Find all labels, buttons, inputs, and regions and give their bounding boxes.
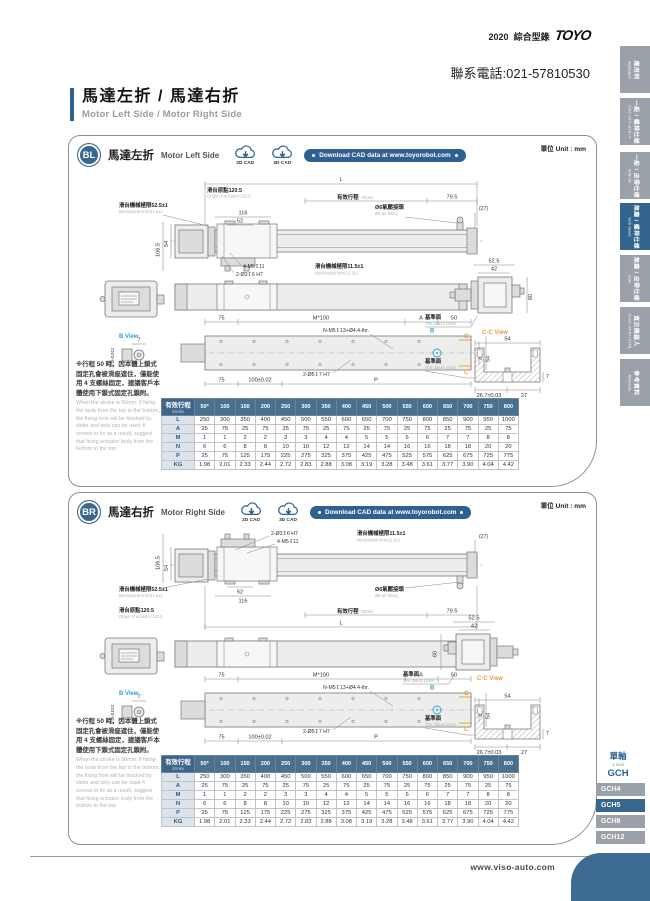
anno-label: 滑台原點120.5 <box>119 606 154 614</box>
br-note: ※行程 50 時，因本體上鎖式固定孔會被滑座遮住，僅能使用 4 支螺絲固定，建議… <box>76 717 162 811</box>
stroke-col-header: 300 <box>296 399 316 416</box>
tab-label-en: ECB <box>628 275 632 282</box>
table-cell: 25 <box>438 782 458 791</box>
table-cell: 6 <box>215 800 235 809</box>
br-stroke-table: 有效行程Stroke50*100150200250300350400450500… <box>161 755 519 827</box>
row-label: M <box>162 434 195 443</box>
bview-label: B View <box>119 334 139 340</box>
unit-label: 單位 Unit : mm <box>541 143 586 153</box>
note-zh: ※行程 50 時，因本體上鎖式固定孔會被滑座遮住，僅能使用 4 支螺絲固定，建議… <box>76 360 162 398</box>
dim-label: 60 <box>528 294 534 300</box>
row-label: A <box>162 425 195 434</box>
table-cell: 4 <box>336 791 356 800</box>
sidebar-item-xygt-xyth-xytb[interactable]: 直交機器人XYGT / XYTH / XYTB <box>620 307 650 354</box>
anno-label: Mechanical limit:11.5±1 <box>357 538 401 543</box>
table-cell: 300 <box>215 773 235 782</box>
dim-label: 27 <box>521 750 527 756</box>
bl-note: ※行程 50 時，因本體上鎖式固定孔會被滑座遮住，僅能使用 4 支螺絲固定，建議… <box>76 360 162 454</box>
table-cell: 6 <box>397 791 417 800</box>
table-cell: 7 <box>458 791 478 800</box>
table-cell: 25 <box>478 425 498 434</box>
page-title-block: 馬達左折 / 馬達右折 Motor Left Side / Motor Righ… <box>70 88 242 121</box>
dim-label: 50 <box>451 316 457 322</box>
table-cell: 775 <box>498 452 518 461</box>
stroke-col-header: 150 <box>235 756 255 773</box>
download-cad-button[interactable]: Download CAD data at www.toyorobot.com <box>310 506 471 519</box>
dim-label: 50 <box>451 673 457 679</box>
table-cell: 250 <box>195 773 215 782</box>
table-cell: 125 <box>235 809 255 818</box>
tab-gch4[interactable]: GCH4 <box>596 783 645 796</box>
dim-label: 42 <box>471 624 477 630</box>
anno-label: 2-Ø5↧7 H7 <box>303 372 330 378</box>
table-cell: 2.44 <box>255 818 275 827</box>
dim-label: 42 <box>491 267 497 273</box>
cad-3d-button[interactable]: 3D CAD <box>267 145 297 166</box>
table-cell: 750 <box>397 416 417 425</box>
anno-label: Ø6氣壓接頭 <box>375 585 404 593</box>
table-cell: 400 <box>255 773 275 782</box>
table-cell: 8 <box>498 791 518 800</box>
anno-label: The datum plane <box>425 365 457 370</box>
anno-label: Stroke <box>361 609 374 614</box>
table-cell: 18 <box>458 800 478 809</box>
tab-gch8[interactable]: GCH8 <box>596 815 645 828</box>
tab-label-zh: 應用例 <box>633 60 642 79</box>
anno-label: 2-Ø3↧6 H7 <box>236 272 263 278</box>
dot-icon <box>318 511 321 514</box>
table-cell: 25 <box>316 425 336 434</box>
table-cell: 75 <box>215 425 235 434</box>
dim-label: 54 <box>486 713 492 719</box>
table-cell: 25 <box>195 809 215 818</box>
table-cell: 225 <box>276 809 296 818</box>
bview-label: B View <box>119 691 139 697</box>
section-marker: C <box>464 691 469 697</box>
sidebar-item-gth-gty-eth-y[interactable]: 一般 / 螺桿仕樣GTH / GTY / ETH / Y <box>620 98 650 145</box>
stroke-col-header: 50* <box>195 399 215 416</box>
table-cell: 425 <box>357 809 377 818</box>
bl-title-en: Motor Left Side <box>161 151 219 160</box>
row-label: A <box>162 782 195 791</box>
cad-3d-button[interactable]: 3D CAD <box>273 502 303 523</box>
anno-label: 基準面 <box>424 714 442 722</box>
stroke-col-header: 400 <box>336 399 356 416</box>
br-badge: BR <box>77 500 101 524</box>
stroke-col-header: 200 <box>255 756 275 773</box>
table-cell: 1000 <box>498 416 518 425</box>
dot-icon <box>455 154 458 157</box>
cad-2d-download-icon <box>232 145 259 162</box>
anno-label: 基準面 <box>424 357 442 365</box>
anno-label: 滑台機械極限52.5±1 <box>119 201 168 209</box>
table-cell: 16 <box>417 443 437 452</box>
dim-label: 116 <box>239 211 248 217</box>
table-cell: 25 <box>235 782 255 791</box>
dim-label: 75 <box>218 673 224 679</box>
table-cell: 6 <box>215 443 235 452</box>
table-cell: 75 <box>498 425 518 434</box>
table-cell: 4 <box>316 434 336 443</box>
table-cell: 14 <box>377 800 397 809</box>
table-cell: 8 <box>498 434 518 443</box>
table-cell: 6 <box>417 434 437 443</box>
table-cell: 75 <box>336 425 356 434</box>
bl-badge: BL <box>77 143 101 167</box>
table-row: A25752575257525752575257525752575 <box>162 782 519 791</box>
stroke-col-header: 700 <box>458 399 478 416</box>
dim-label: 27 <box>521 393 527 399</box>
table-cell: 225 <box>276 452 296 461</box>
table-row: L250300350400450500550600650700750800850… <box>162 773 519 782</box>
row-label: N <box>162 443 195 452</box>
dim-label: 75 <box>218 378 224 384</box>
table-cell: 14 <box>377 443 397 452</box>
row-label: M <box>162 791 195 800</box>
table-cell: 950 <box>478 773 498 782</box>
stroke-col-header: 150 <box>235 399 255 416</box>
stroke-col-header: 500 <box>377 756 397 773</box>
dim-label: 54 <box>504 694 510 700</box>
table-cell: 4.04 <box>478 461 498 470</box>
brand-line: 2020 綜合型錄 TOYO <box>489 27 590 43</box>
table-row: L250300350400450500550600650700750800850… <box>162 416 519 425</box>
table-cell: 1 <box>215 434 235 443</box>
cc-view-label: C-C View <box>477 676 503 682</box>
stroke-col-header: 250 <box>276 756 296 773</box>
bl-stroke-table: 有效行程Stroke50*100150200250300350400450500… <box>161 398 519 470</box>
dim-label: P <box>374 735 378 741</box>
download-cad-label: Download CAD data at www.toyorobot.com <box>325 509 456 516</box>
table-cell: 6 <box>195 800 215 809</box>
dim-label: 100±0.02 <box>248 735 271 741</box>
table-cell: 75 <box>417 782 437 791</box>
cad-2d-label: 2D CAD <box>236 161 254 166</box>
tab-label-en: Reference <box>628 374 632 391</box>
table-cell: 350 <box>235 773 255 782</box>
table-cell: 6 <box>195 443 215 452</box>
dim-label: (27) <box>479 206 488 212</box>
table-cell: 75 <box>458 782 478 791</box>
table-cell: 3.77 <box>438 461 458 470</box>
table-row: P257512517522527532537542547552557562567… <box>162 452 519 461</box>
table-cell: 3.19 <box>357 818 377 827</box>
table-row: N6688101012121414161618182020 <box>162 800 519 809</box>
dim-label: 7 <box>137 695 140 701</box>
dim-label: 52.5 <box>489 259 500 265</box>
footer-divider <box>30 856 650 857</box>
dot-icon <box>312 154 315 157</box>
table-cell: 2.72 <box>276 461 296 470</box>
table-cell: 6 <box>417 791 437 800</box>
catalog-year: 2020 <box>489 32 509 42</box>
note-zh: ※行程 50 時，因本體上鎖式固定孔會被滑座遮住，僅能使用 4 支螺絲固定，建議… <box>76 717 162 755</box>
stroke-col-header: 50* <box>195 756 215 773</box>
table-cell: 2 <box>235 434 255 443</box>
table-cell: 16 <box>417 800 437 809</box>
table-cell: 20 <box>498 443 518 452</box>
table-cell: 16 <box>397 800 417 809</box>
unit-label: 單位 Unit : mm <box>541 500 586 510</box>
dim-label: 52 <box>237 219 243 225</box>
anno-label: 4-M5↧11 <box>243 264 265 270</box>
table-cell: 725 <box>478 809 498 818</box>
table-cell: 75 <box>255 425 275 434</box>
table-cell: 75 <box>296 782 316 791</box>
stroke-col-header: 650 <box>438 399 458 416</box>
stroke-col-header: 450 <box>357 756 377 773</box>
cad-3d-download-icon <box>275 502 302 519</box>
table-cell: 4.04 <box>478 818 498 827</box>
anno-label: Origin of actuator:120.5 <box>119 614 163 619</box>
stroke-col-header: 700 <box>458 756 478 773</box>
table-cell: 3 <box>276 791 296 800</box>
anno-label: Ø6 air fitting <box>375 211 398 216</box>
table-cell: 3 <box>296 791 316 800</box>
anno-label: 4-M5↧11 <box>277 539 299 545</box>
dim-label: A <box>419 673 423 679</box>
table-cell: 675 <box>458 809 478 818</box>
cad-2d-button[interactable]: 2D CAD <box>230 145 260 166</box>
table-cell: 475 <box>377 809 397 818</box>
download-cad-label: Download CAD data at www.toyorobot.com <box>319 152 450 159</box>
table-cell: 4.42 <box>498 461 518 470</box>
anno-label: 2-Ø5↧7 H7 <box>303 729 330 735</box>
dim-label: 106.5 <box>156 243 162 257</box>
dim-label: 52 <box>237 590 243 596</box>
table-cell: 2.01 <box>215 818 235 827</box>
stroke-col-header: 750 <box>478 756 498 773</box>
table-cell: 25 <box>316 782 336 791</box>
anno-label: The datum plane <box>425 722 457 727</box>
table-cell: 75 <box>255 782 275 791</box>
catalog-label: 綜合型錄 <box>514 30 550 43</box>
stroke-col-header: 300 <box>296 756 316 773</box>
cad-2d-label: 2D CAD <box>242 518 260 523</box>
anno-label: N-M5↧13+Ø4.4-thr. <box>323 685 369 691</box>
row-label: P <box>162 452 195 461</box>
table-cell: 3.08 <box>336 818 356 827</box>
toyo-logo: TOYO <box>553 27 591 43</box>
table-cell: 550 <box>316 773 336 782</box>
table-cell: 600 <box>336 773 356 782</box>
bl-title-zh: 馬達左折 <box>108 147 154 163</box>
table-cell: 650 <box>357 773 377 782</box>
table-cell: 2.33 <box>235 818 255 827</box>
stroke-col-header: 500 <box>377 399 397 416</box>
dim-label: M*100 <box>313 673 329 679</box>
dim-label: 54 <box>164 565 170 571</box>
sidebar-item-etb-m[interactable]: 一般 / 皮帶仕樣ETB / M <box>620 152 650 199</box>
anno-label: 滑台機械極限11.5±1 <box>315 262 364 270</box>
table-cell: 375 <box>336 452 356 461</box>
stroke-col-header: 600 <box>417 399 437 416</box>
anno-label: N-M5↧13+Ø4.4-thr. <box>323 328 369 334</box>
table-cell: 10 <box>296 443 316 452</box>
table-cell: 75 <box>377 782 397 791</box>
dim-label: 106.5 <box>156 556 162 570</box>
footer-url: www.viso-auto.com <box>470 862 555 872</box>
anno-label: 有效行程 <box>337 607 359 615</box>
section-marker: B <box>430 686 435 692</box>
br-panel-header: BR 馬達右折 Motor Right Side 2D CAD 3D CAD D… <box>77 498 586 526</box>
table-cell: 3.19 <box>357 461 377 470</box>
table-cell: 25 <box>357 782 377 791</box>
table-cell: 700 <box>377 773 397 782</box>
table-cell: 7 <box>438 434 458 443</box>
table-cell: 575 <box>417 809 437 818</box>
table-cell: 2.83 <box>296 818 316 827</box>
axis-group-en: 1 axis <box>596 762 640 767</box>
table-cell: 25 <box>235 425 255 434</box>
table-cell: 8 <box>478 791 498 800</box>
table-cell: 2.01 <box>215 461 235 470</box>
sidebar-item-ecb[interactable]: 無塵 / 皮帶仕樣ECB <box>620 255 650 302</box>
tab-label-en: ETB / M <box>628 169 632 182</box>
table-row: N6688101012121414161618182020 <box>162 443 519 452</box>
anno-label: 基準面 <box>424 313 442 321</box>
table-cell: 7 <box>458 434 478 443</box>
table-cell: 5 <box>357 434 377 443</box>
download-cad-button[interactable]: Download CAD data at www.toyorobot.com <box>304 149 465 162</box>
anno-label: 有效行程 <box>337 193 359 201</box>
table-cell: 5 <box>357 791 377 800</box>
dim-label: 7 <box>137 338 140 344</box>
table-cell: 1.98 <box>195 461 215 470</box>
table-cell: 14 <box>357 443 377 452</box>
table-cell: 75 <box>458 425 478 434</box>
table-cell: 350 <box>235 416 255 425</box>
dim-label: 75 <box>218 316 224 322</box>
table-cell: 800 <box>417 416 437 425</box>
table-cell: 775 <box>498 809 518 818</box>
axis-group-zh: 單軸 <box>596 750 640 762</box>
table-cell: 3.90 <box>458 461 478 470</box>
dot-icon <box>460 511 463 514</box>
table-cell: 10 <box>276 443 296 452</box>
table-cell: 75 <box>498 782 518 791</box>
dim-label: 7 <box>546 374 549 380</box>
stroke-header: 有效行程Stroke <box>162 399 195 416</box>
table-row: KG1.982.012.332.442.722.832.883.083.193.… <box>162 461 519 470</box>
stroke-col-header: 800 <box>498 399 518 416</box>
stroke-col-header: 400 <box>336 756 356 773</box>
dim-label: 54 <box>504 337 510 343</box>
table-cell: 2.83 <box>296 461 316 470</box>
sidebar-item-reference[interactable]: 參考資料Reference <box>620 359 650 406</box>
table-cell: 1.98 <box>195 818 215 827</box>
table-cell: 1 <box>215 791 235 800</box>
table-cell: 3.61 <box>417 818 437 827</box>
stroke-col-header: 250 <box>276 399 296 416</box>
table-cell: 18 <box>438 443 458 452</box>
row-label: KG <box>162 818 195 827</box>
table-cell: 550 <box>316 416 336 425</box>
dim-label: 54 <box>486 356 492 362</box>
sidebar-item-application[interactable]: 應用例Application <box>620 46 650 93</box>
stroke-col-header: 550 <box>397 399 417 416</box>
row-label: KG <box>162 461 195 470</box>
tab-label-zh: 參考資料 <box>633 370 642 395</box>
table-cell: 2 <box>255 791 275 800</box>
table-cell: 4 <box>316 791 336 800</box>
dim-label: M*100 <box>313 316 329 322</box>
table-cell: 3.48 <box>397 818 417 827</box>
dim-label: L <box>339 177 342 183</box>
table-cell: 375 <box>336 809 356 818</box>
dim-label: 100±0.02 <box>248 378 271 384</box>
catalog-page: 2020 綜合型錄 TOYO 聯系電話:021-57810530 馬達左折 / … <box>0 0 650 901</box>
dim-label: A <box>419 316 423 322</box>
table-cell: 75 <box>215 452 235 461</box>
table-cell: 20 <box>478 800 498 809</box>
stroke-col-header: 600 <box>417 756 437 773</box>
table-cell: 25 <box>438 425 458 434</box>
table-cell: 750 <box>397 773 417 782</box>
br-bottom-view: 75 M*100 A 50 N-M5↧13+Ø4.4-thr. B C C 45… <box>110 673 492 745</box>
stroke-col-header: 450 <box>357 399 377 416</box>
stroke-col-header: 650 <box>438 756 458 773</box>
table-cell: 3.48 <box>397 461 417 470</box>
table-cell: 600 <box>336 416 356 425</box>
tab-label-en: XYGT / XYTH / XYTB <box>628 313 632 348</box>
note-en: When the stroke is 50mm, if fixing the b… <box>76 400 162 454</box>
table-cell: 275 <box>296 809 316 818</box>
table-cell: 1 <box>195 791 215 800</box>
cad-3d-label: 3D CAD <box>273 161 291 166</box>
stroke-header: 有效行程Stroke <box>162 756 195 773</box>
table-cell: 4.42 <box>498 818 518 827</box>
anno-label: 基準面 <box>402 670 420 678</box>
table-cell: 25 <box>195 452 215 461</box>
dim-label: 7 <box>546 731 549 737</box>
table-cell: 25 <box>195 425 215 434</box>
cad-3d-label: 3D CAD <box>279 518 297 523</box>
tab-gch12[interactable]: GCH12 <box>596 831 645 844</box>
contact-phone: 聯系電話:021-57810530 <box>451 63 590 82</box>
sidebar-item-gch-series[interactable]: 無塵 / 螺桿仕樣GCH Series <box>620 203 650 250</box>
table-cell: 4 <box>336 434 356 443</box>
table-cell: 3.90 <box>458 818 478 827</box>
panel-motor-right: BR 馬達右折 Motor Right Side 2D CAD 3D CAD D… <box>68 492 597 845</box>
page-subtitle: Motor Left Side / Motor Right Side <box>82 109 242 120</box>
dim-label: 79.5 <box>447 195 458 201</box>
table-cell: 175 <box>255 452 275 461</box>
cc-view-label: C-C View <box>482 330 508 336</box>
table-cell: 325 <box>316 452 336 461</box>
tab-gch5[interactable]: GCH5 <box>596 799 645 812</box>
anno-label: 滑台機械極限11.5±1 <box>357 529 406 537</box>
table-cell: 75 <box>336 782 356 791</box>
table-cell: 14 <box>357 800 377 809</box>
table-cell: 25 <box>276 425 296 434</box>
table-cell: 18 <box>458 443 478 452</box>
dim-label: (27) <box>479 534 488 540</box>
cad-2d-button[interactable]: 2D CAD <box>236 502 266 523</box>
tab-label-en: GCH Series <box>628 217 632 236</box>
table-cell: 450 <box>276 416 296 425</box>
section-marker: C <box>464 370 469 376</box>
anno-label: Origin of actuator:120.5 <box>207 194 251 199</box>
table-cell: 16 <box>397 443 417 452</box>
table-cell: 8 <box>255 800 275 809</box>
axis-group-header: 單軸 1 axis GCH <box>596 750 640 779</box>
section-marker: C <box>464 334 469 340</box>
table-row: M1122334455667788 <box>162 434 519 443</box>
table-cell: 7 <box>438 791 458 800</box>
bl-panel-header: BL 馬達左折 Motor Left Side 2D CAD 3D CAD Do… <box>77 141 586 169</box>
table-cell: 25 <box>397 782 417 791</box>
